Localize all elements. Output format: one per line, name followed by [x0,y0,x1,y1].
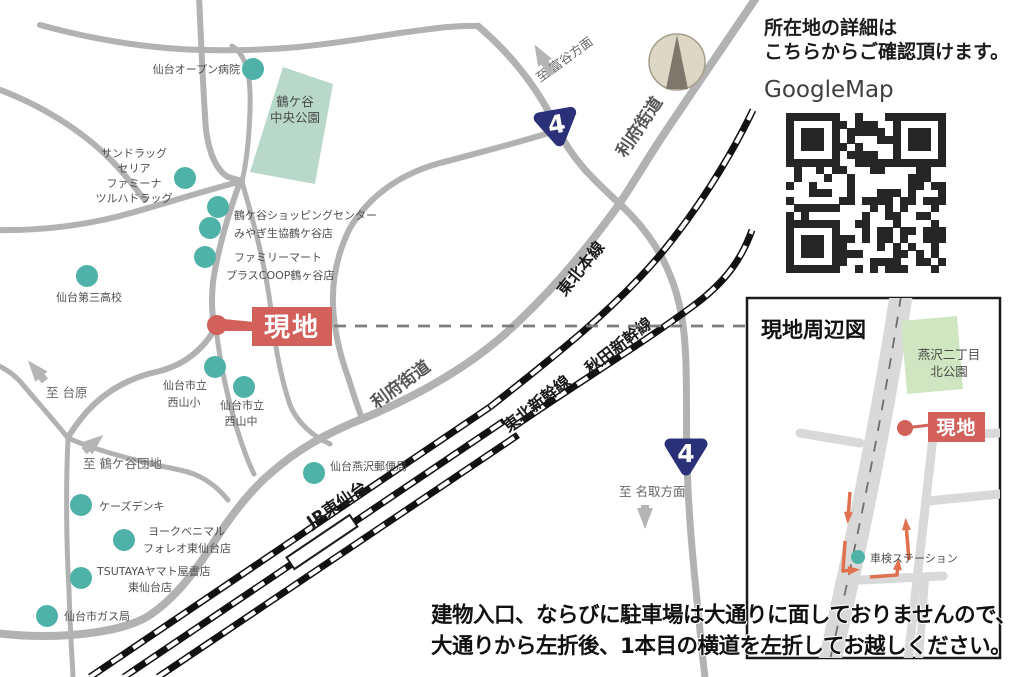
header-block: 所在地の詳細は こちらからご確認頂けます。 GoogleMap [764,16,1009,103]
poi-labels: 仙台オープン病院 サンドラッグ セリア ファミーナ ツルハドラッグ 鶴ケ谷ショッ… [56,62,407,623]
route4-shield-south: 4 [670,439,702,470]
site-label: 現地 [264,313,320,343]
poi-label-drug-3: ファミーナ [107,177,162,190]
inset-park-label-2: 北公園 [930,364,968,379]
route4-shield-north: 4 [538,107,575,143]
poi-dot-shopping-center [207,196,229,218]
poi-label-open-hospital: 仙台オープン病院 [153,62,240,76]
access-map-page: { "header": { "line1": "所在地の詳細は", "line2… [0,0,1024,677]
poi-dot-tsutaya [70,567,92,589]
inset-title: 現地周辺図 [761,318,866,342]
poi-label-nishiyama-es-2: 西山小 [168,396,201,409]
poi-label-tsutaya-2: 東仙台店 [128,580,172,594]
arrow-dainohara [35,369,45,381]
poi-label-coop: みやぎ生協鶴ケ谷店 [234,226,333,240]
road-x-nw [0,364,68,438]
poi-dot-open-hospital [242,58,264,80]
poi-label-drug-2: セリア [118,162,151,175]
poi-dot-daisan-high [76,265,98,287]
poi-dot-nishiyama-es [204,356,226,378]
road-top-arc [40,25,478,50]
tohoku-main-line-label: 東北本線 [553,238,608,300]
poi-label-nishiyama-es-1: 仙台市立 [163,378,207,392]
dir-label-tsurugaya: 至 鶴ケ谷団地 [83,456,162,471]
caption-line1: 建物入口、ならびに駐車場は大通りに面しておりませんので、 [431,600,1016,631]
poi-dot-york-benimaru [113,529,135,551]
poi-label-ks-denki: ケーズデンキ [99,499,164,513]
route4-number-south: 4 [677,439,694,468]
compass-icon [649,34,705,90]
poi-dot-coop [199,217,221,239]
header-line1: 所在地の詳細は [764,16,1009,40]
caption-line2: 大通りから左折後、1本目の横道を左折してお越しください。 [431,631,1016,662]
caption: 建物入口、ならびに駐車場は大通りに面しておりませんので、 大通りから左折後、1本… [431,600,1016,662]
poi-label-daisan-high: 仙台第三高校 [56,290,122,304]
dir-label-dainohara: 至 台原 [46,385,87,400]
road-x-south [67,438,73,677]
poi-label-drug-1: サンドラッグ [101,146,167,160]
poi-dot-familymart [194,246,216,268]
poi-label-post-office: 仙台燕沢郵便局 [330,459,407,473]
tsurugaya-central-park: 鶴ケ谷 中央公園 [250,67,333,184]
poi-label-tsutaya-1: TSUTAYAヤマト屋書店 [96,564,211,578]
poi-label-nishiyama-jhs-1: 仙台市立 [220,398,264,412]
google-map-label: GoogleMap [764,77,1009,103]
lifu-kaido-label-upper: 利府街道 [612,93,667,161]
park-label-line1: 鶴ケ谷 [276,94,314,109]
inset-poi-label-shaken: 車検ステーション [870,551,958,565]
road-north-vertical [199,0,242,181]
poi-label-drug-4: ツルハドラッグ [96,191,173,205]
poi-dot-ks-denki [70,494,92,516]
qr-code [786,113,946,273]
site-dot [207,315,227,335]
poi-label-shopping-center: 鶴ケ谷ショッピングセンター [234,208,377,222]
park-label-line2: 中央公園 [270,110,320,125]
poi-dot-post-office [303,462,325,484]
poi-label-familymart-2: プラスCOOP鶴ヶ谷店 [226,268,334,282]
poi-dot-nishiyama-jhs [233,376,255,398]
inset-poi-dot-shaken [851,550,865,564]
tohoku-shinkansen-label: 東北新幹線 [499,372,574,436]
site-marker: 現地 [207,307,332,346]
poi-label-gas: 仙台市ガス局 [64,609,130,623]
poi-dot-gas [36,605,58,627]
dir-label-natori: 至 名取方面 [619,484,685,499]
poi-label-nishiyama-jhs-2: 西山中 [225,415,258,428]
inset-park-label-1: 燕沢二丁目 [918,347,981,362]
poi-label-familymart-1: ファミリーマート [234,251,322,264]
poi-label-york-2: フォレオ東仙台店 [143,541,231,555]
poi-dot-drugstores [174,167,196,189]
poi-label-york-1: ヨークベニマル [148,525,225,538]
header-line2: こちらからご確認頂けます。 [764,40,1009,64]
inset-site-label: 現地 [936,416,976,439]
